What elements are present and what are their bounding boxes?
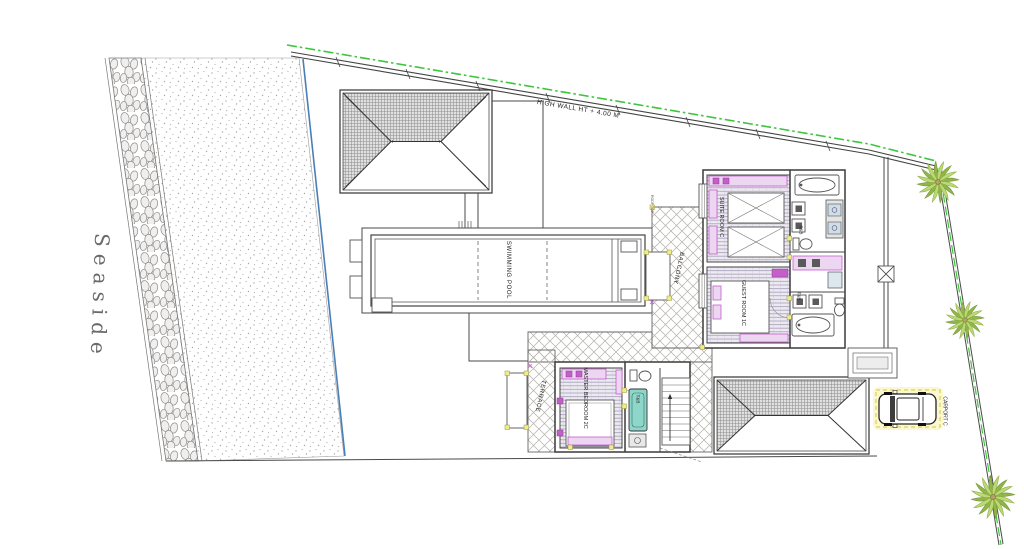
- carport-label: CARPORT C: [942, 396, 947, 425]
- master-tb-label: T&B: [635, 395, 640, 404]
- sink: [629, 434, 646, 447]
- service-wall: [848, 157, 897, 378]
- balcony-planter: [646, 252, 670, 300]
- master-wing: [555, 362, 702, 462]
- roof-upper: [340, 90, 492, 193]
- guest-tb-label: T&B: [796, 292, 801, 301]
- master-bathroom: [629, 370, 651, 447]
- seaside-label: Seaside: [88, 233, 112, 361]
- palm-fence: [917, 161, 1015, 545]
- laundry-unit: [828, 272, 842, 288]
- pool-step: [621, 289, 637, 300]
- stairs: [662, 378, 690, 445]
- window: [699, 274, 707, 308]
- toilet: [835, 298, 844, 304]
- suite-bathroom: [792, 175, 843, 250]
- site-plan-canvas: Seaside HIGH WALL HT + 4.00 M SWIMMING P…: [0, 0, 1024, 549]
- swimming-pool-label: SWIMMING POOL: [505, 241, 511, 299]
- master-bedroom-label: MASTER BEDROOM 2C: [581, 367, 587, 428]
- pool-step: [621, 241, 637, 252]
- palm-tree-icon: [946, 301, 984, 339]
- guest-closet: [740, 334, 788, 342]
- suite-tb-label: T&B: [798, 226, 803, 235]
- suite-wardrobe: [709, 176, 787, 186]
- site-plan-drawing: [0, 0, 1024, 549]
- suite-room-label: SUITE ROOM C: [717, 197, 723, 237]
- car-icon: [879, 391, 936, 428]
- guest-room-label: GUEST ROOM 1C: [739, 280, 745, 326]
- carport: [873, 387, 943, 430]
- roof-top-label: ROOF TOP: [649, 195, 653, 213]
- window: [699, 184, 707, 218]
- roof-lower: [714, 377, 869, 454]
- toilet: [630, 370, 637, 381]
- guest-bathroom: [792, 295, 845, 336]
- toilet: [793, 238, 799, 250]
- master-bed: [566, 400, 614, 446]
- terrace-planter: [507, 373, 527, 428]
- pool-ladder-icon: [459, 221, 471, 228]
